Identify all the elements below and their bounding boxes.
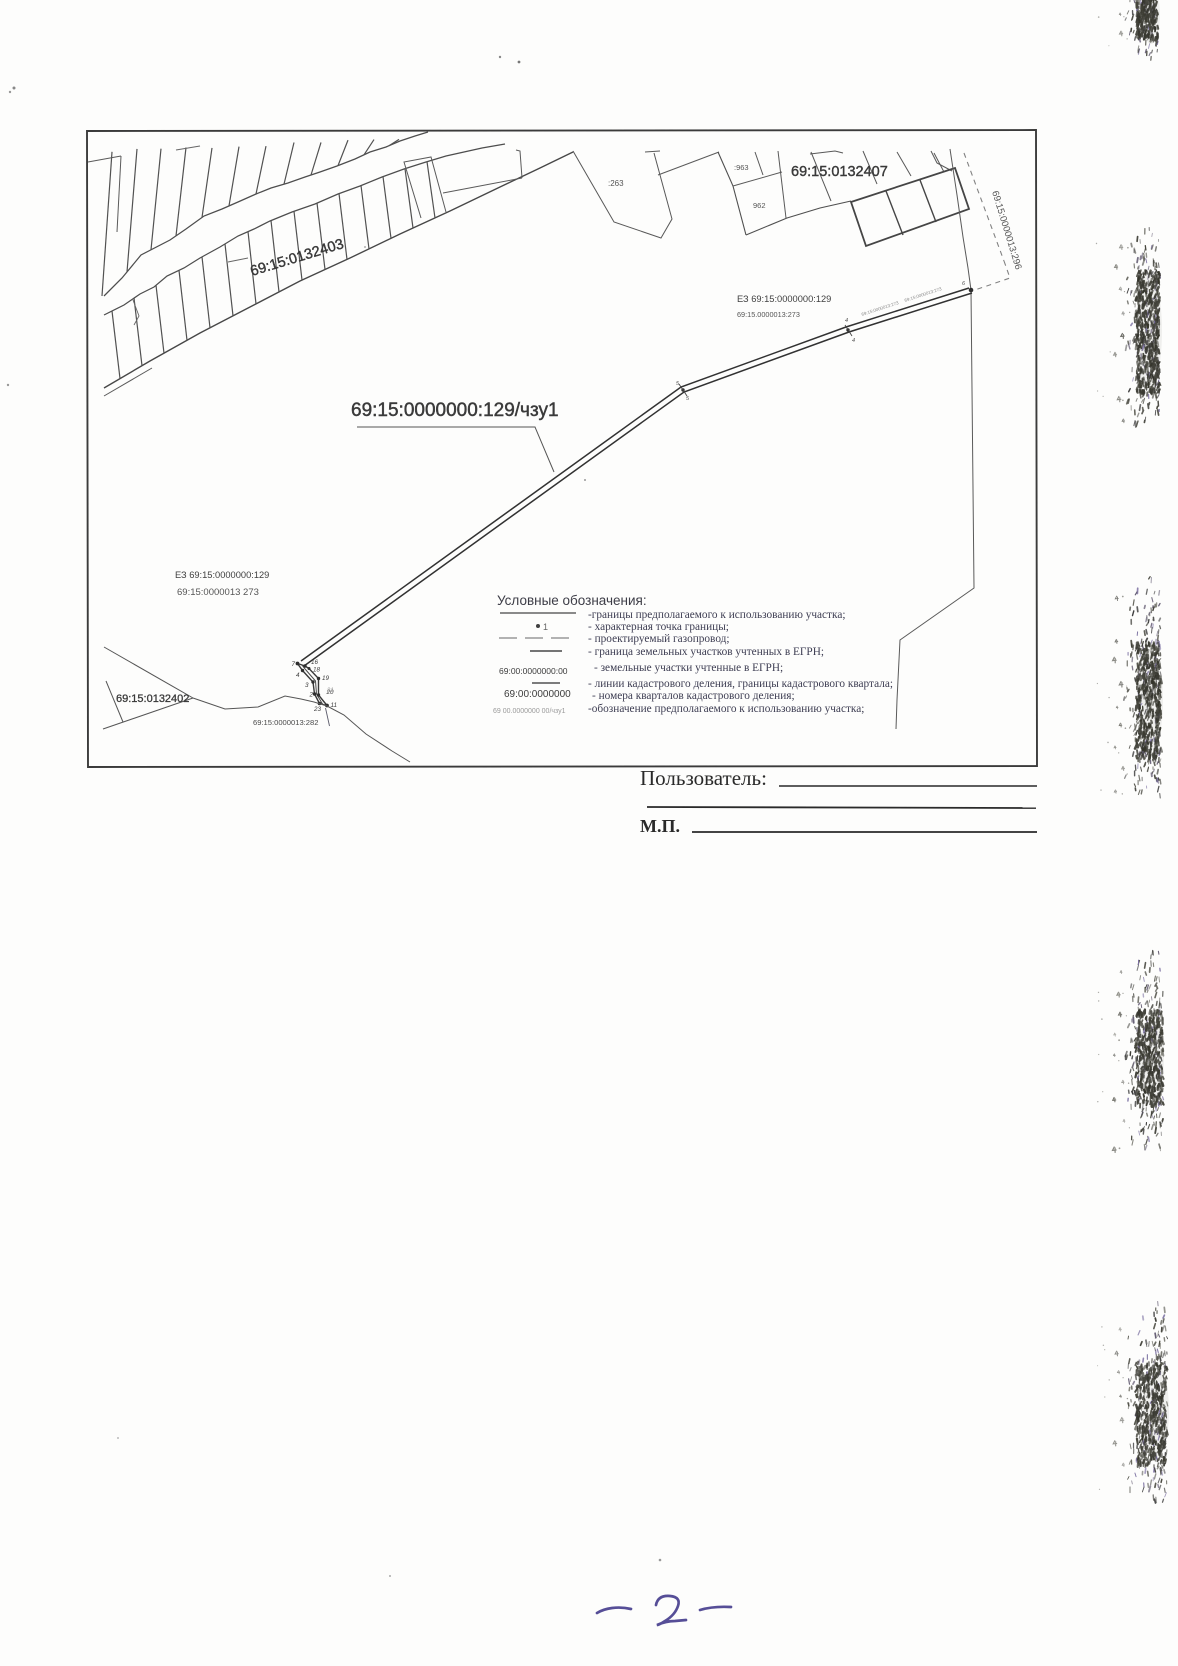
svg-text::263: :263 [608,179,624,188]
svg-text:69:15:0000013 273: 69:15:0000013 273 [177,587,259,598]
svg-text:-границы предполагаемого к исп: -границы предполагаемого к использованию… [588,609,845,621]
svg-text:- характерная точка границы;: - характерная точка границы; [588,621,729,633]
svg-text:3: 3 [305,682,309,689]
svg-text:-обозначение предполагаемого к: -обозначение предполагаемого к использов… [588,703,864,715]
svg-text:- линии кадастрового деления,: - линии кадастрового деления, границы ка… [588,678,893,690]
svg-text:69:00:0000000:00: 69:00:0000000:00 [499,666,568,676]
svg-text:ЕЗ 69:15:0000000:129: ЕЗ 69:15:0000000:129 [737,294,831,304]
svg-text:- номера кварталов кадастровог: - номера кварталов кадастрового деления; [592,690,795,702]
svg-text:Пользователь:: Пользователь: [640,766,767,790]
svg-text:4: 4 [296,672,300,679]
svg-text:69:15:0000000:129/чзу1: 69:15:0000000:129/чзу1 [351,400,559,421]
svg-text:4: 4 [845,318,848,324]
svg-text:19: 19 [322,675,330,682]
svg-text:962: 962 [753,201,766,210]
svg-text:18: 18 [313,667,321,674]
svg-text:- проектируемый газопровод;: - проектируемый газопровод; [588,633,730,645]
svg-text:69:15:0132402: 69:15:0132402 [116,693,189,705]
svg-text:7: 7 [292,661,296,668]
svg-text:ЕЗ 69:15:0000000:129: ЕЗ 69:15:0000000:129 [175,570,269,580]
svg-text:69:00:0000000: 69:00:0000000 [504,689,571,700]
svg-text:23: 23 [313,706,322,713]
svg-text:4: 4 [852,338,855,344]
svg-text:1: 1 [543,622,548,632]
svg-text:69 00.0000000 00/чзу1: 69 00.0000000 00/чзу1 [493,708,566,715]
svg-text:- земельные участки учтенные в: - земельные участки учтенные в ЕГРН; [594,662,783,674]
svg-text:69:15.0000013:273: 69:15.0000013:273 [737,310,800,319]
svg-text:16: 16 [311,659,319,666]
svg-text::963: :963 [734,163,749,172]
svg-text:69:15:0132407: 69:15:0132407 [791,164,888,180]
svg-text:- граница земельных участков у: - граница земельных участков учтенных в … [588,646,824,658]
svg-text:Условные обозначения:: Условные обозначения: [497,593,647,608]
svg-text:М.П.: М.П. [640,816,680,836]
svg-text:2: 2 [309,692,314,699]
svg-text:69:15:0000013:282: 69:15:0000013:282 [253,718,318,727]
svg-text:21: 21 [326,688,334,694]
